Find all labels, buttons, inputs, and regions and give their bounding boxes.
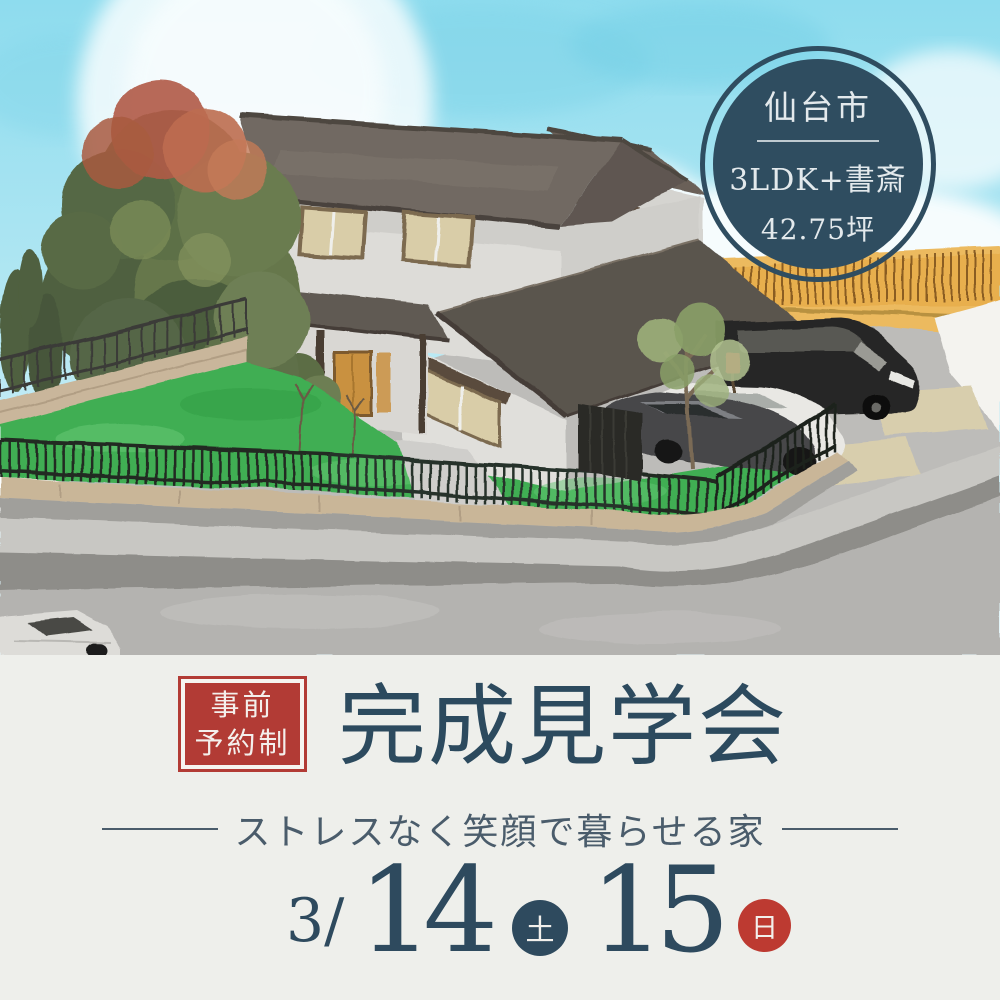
floor-plan-label: 3LDK+書斎 [729, 155, 907, 199]
second-floor-window [298, 207, 365, 258]
tagline-right-rule [782, 828, 898, 830]
event-title: 完成見学会 [338, 679, 788, 776]
reservation-badge: 事前 予約制 [178, 676, 307, 772]
reservation-line1: 事前 [210, 686, 274, 724]
tagline-left-rule [102, 828, 218, 830]
badge-disc: 仙台市 3LDK+書斎 42.75坪 [713, 59, 923, 269]
open-house-flyer: 仙台市 3LDK+書斎 42.75坪 事前 予約制 完成見学会 ストレスなく笑顔… [0, 0, 1000, 1000]
tagline-row: ストレスなく笑顔で暮らせる家 [0, 803, 1000, 855]
second-floor-window [402, 213, 471, 266]
reservation-badge-fill: 事前 予約制 [185, 683, 300, 765]
sunday-badge: 日 [738, 899, 791, 952]
saturday-badge: 土 [512, 900, 568, 956]
reservation-line2: 予約制 [194, 724, 290, 762]
house-illustration: 仙台市 3LDK+書斎 42.75坪 [0, 0, 1000, 656]
event-info-panel: 事前 予約制 完成見学会 ストレスなく笑顔で暮らせる家 3/ 14 土 15 日 [0, 655, 1000, 1000]
day-14: 14 [358, 851, 488, 969]
city-label: 仙台市 [764, 81, 872, 129]
property-info-badge: 仙台市 3LDK+書斎 42.75坪 [700, 46, 936, 282]
gate-panel [578, 404, 642, 482]
tagline-text: ストレスなく笑顔で暮らせる家 [234, 803, 765, 855]
day-15: 15 [590, 851, 720, 969]
month-label: 3/ [286, 886, 344, 956]
floor-area-label: 42.75坪 [761, 208, 875, 248]
badge-divider [757, 140, 879, 142]
